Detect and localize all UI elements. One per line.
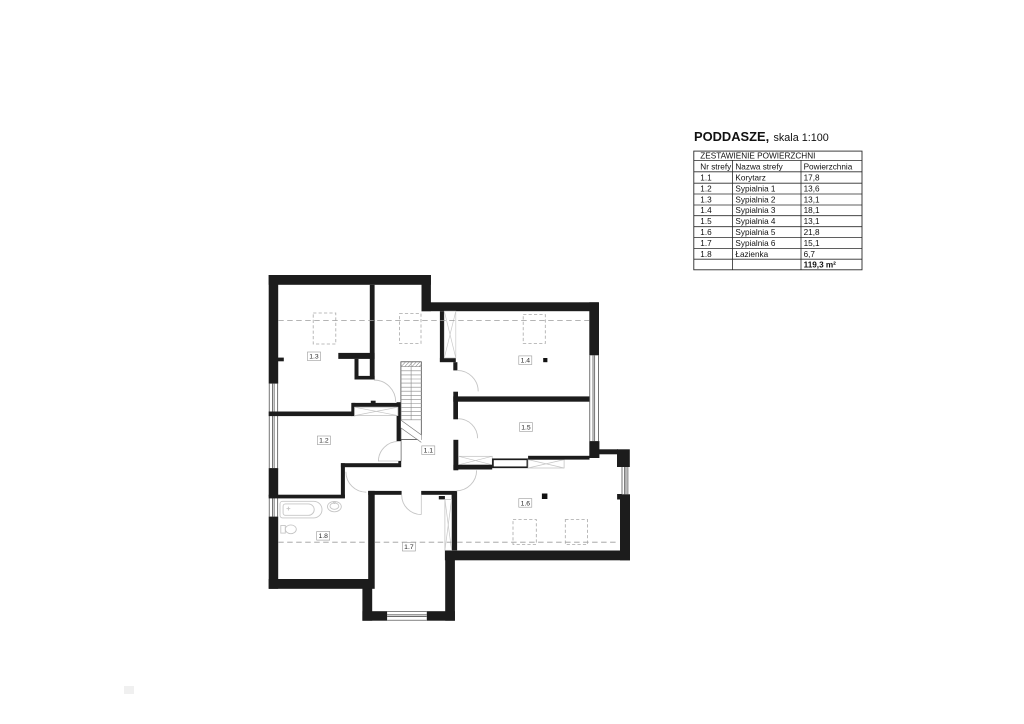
svg-text:1.8: 1.8 — [318, 533, 328, 540]
svg-text:PODDASZE,: PODDASZE, — [694, 129, 769, 144]
svg-text:1.4: 1.4 — [700, 206, 712, 215]
svg-text:21,8: 21,8 — [804, 228, 820, 237]
svg-text:Sypialnia 2: Sypialnia 2 — [735, 195, 776, 204]
svg-text:6,7: 6,7 — [804, 250, 816, 259]
svg-text:1.4: 1.4 — [521, 358, 531, 365]
svg-text:1.7: 1.7 — [404, 544, 414, 551]
svg-text:1.6: 1.6 — [700, 228, 712, 237]
svg-text:15,1: 15,1 — [804, 239, 820, 248]
svg-text:Nazwa strefy: Nazwa strefy — [735, 162, 783, 171]
svg-text:Korytarz: Korytarz — [735, 174, 765, 183]
svg-text:119,3 m²: 119,3 m² — [804, 260, 837, 269]
svg-text:Nr strefy: Nr strefy — [700, 162, 732, 171]
svg-text:Sypialnia 5: Sypialnia 5 — [735, 228, 776, 237]
svg-text:1.2: 1.2 — [700, 185, 712, 194]
svg-text:Powierzchnia: Powierzchnia — [804, 162, 853, 171]
svg-text:Łazienka: Łazienka — [735, 250, 768, 259]
svg-text:13,1: 13,1 — [804, 217, 820, 226]
svg-text:ZESTAWIENIE POWIERZCHNI: ZESTAWIENIE POWIERZCHNI — [700, 151, 815, 160]
svg-text:18,1: 18,1 — [804, 206, 820, 215]
svg-text:1.7: 1.7 — [700, 239, 712, 248]
svg-text:Sypialnia 4: Sypialnia 4 — [735, 217, 776, 226]
svg-text:skala 1:100: skala 1:100 — [774, 132, 829, 144]
svg-text:1.2: 1.2 — [319, 438, 329, 445]
svg-text:1.1: 1.1 — [424, 448, 434, 455]
svg-text:13,6: 13,6 — [804, 185, 820, 194]
svg-text:1.8: 1.8 — [700, 250, 712, 259]
svg-text:1.5: 1.5 — [700, 217, 712, 226]
svg-text:1.3: 1.3 — [309, 354, 319, 361]
svg-text:13,1: 13,1 — [804, 195, 820, 204]
svg-text:Sypialnia 3: Sypialnia 3 — [735, 206, 776, 215]
svg-text:1.1: 1.1 — [700, 174, 712, 183]
svg-text:1.3: 1.3 — [700, 195, 712, 204]
svg-text:17,8: 17,8 — [804, 174, 820, 183]
svg-text:Sypialnia 6: Sypialnia 6 — [735, 239, 776, 248]
svg-text:1.6: 1.6 — [521, 500, 531, 507]
svg-text:1.5: 1.5 — [521, 424, 531, 431]
svg-text:Sypialnia 1: Sypialnia 1 — [735, 185, 776, 194]
